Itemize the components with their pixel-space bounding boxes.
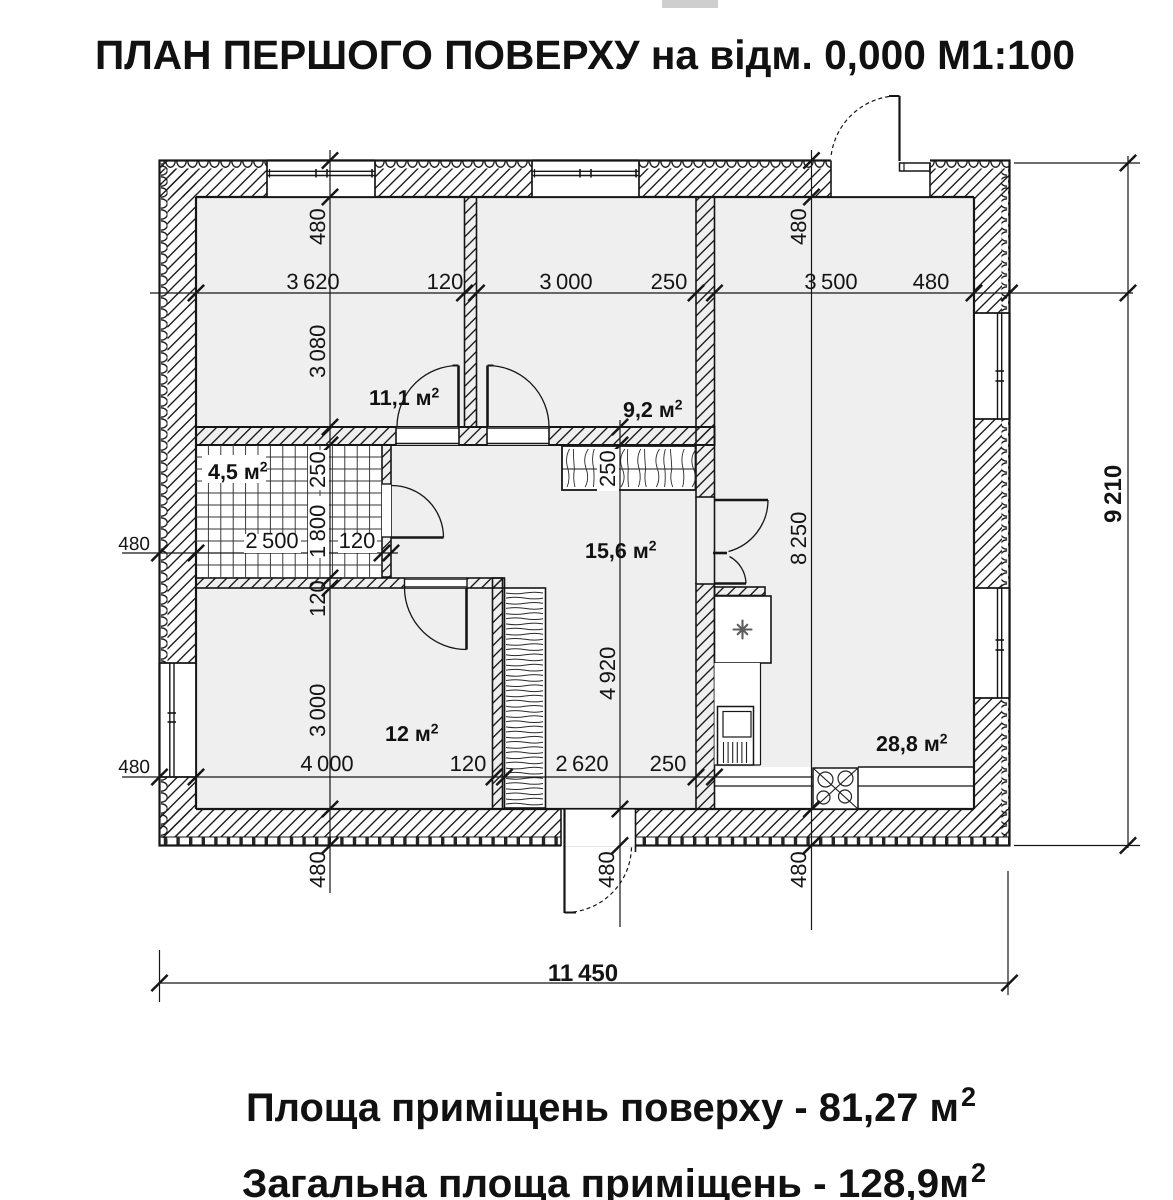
- svg-text:3 620: 3 620: [286, 269, 339, 294]
- svg-text:2: 2: [971, 1158, 986, 1188]
- svg-text:9,2 м2: 9,2 м2: [623, 397, 683, 423]
- svg-text:480: 480: [118, 757, 150, 778]
- svg-text:250: 250: [305, 451, 330, 488]
- svg-text:Площа приміщень поверху - 81,2: Площа приміщень поверху - 81,27 м: [246, 1086, 959, 1130]
- svg-text:12 м2: 12 м2: [385, 721, 439, 747]
- svg-text:120: 120: [427, 269, 464, 294]
- svg-text:15,6 м2: 15,6 м2: [585, 538, 657, 564]
- svg-text:2 500: 2 500: [245, 528, 298, 553]
- svg-text:120: 120: [450, 751, 487, 776]
- svg-text:250: 250: [595, 450, 620, 487]
- svg-text:2 620: 2 620: [555, 751, 608, 776]
- svg-text:4,5 м2: 4,5 м2: [208, 459, 268, 485]
- svg-text:3 080: 3 080: [305, 325, 330, 378]
- svg-text:480: 480: [305, 851, 330, 888]
- svg-text:Загальна площа приміщень - 128: Загальна площа приміщень - 128,9м: [242, 1162, 969, 1200]
- svg-text:1 800: 1 800: [305, 505, 330, 558]
- svg-text:480: 480: [786, 851, 811, 888]
- svg-text:250: 250: [650, 751, 687, 776]
- svg-text:3 000: 3 000: [305, 684, 330, 737]
- svg-text:3 000: 3 000: [539, 269, 592, 294]
- svg-text:480: 480: [913, 269, 950, 294]
- svg-text:4 000: 4 000: [300, 751, 353, 776]
- svg-text:11,1 м2: 11,1 м2: [369, 385, 440, 411]
- svg-text:480: 480: [594, 851, 619, 888]
- svg-text:120: 120: [339, 528, 376, 553]
- svg-text:480: 480: [305, 208, 330, 245]
- svg-text:2: 2: [961, 1082, 976, 1112]
- svg-text:9 210: 9 210: [1100, 465, 1127, 523]
- svg-text:480: 480: [118, 534, 150, 555]
- svg-text:3 500: 3 500: [804, 269, 857, 294]
- svg-text:8 250: 8 250: [786, 512, 811, 565]
- svg-text:11 450: 11 450: [548, 960, 618, 987]
- svg-text:250: 250: [651, 269, 688, 294]
- svg-text:28,8 м2: 28,8 м2: [876, 731, 948, 757]
- svg-text:480: 480: [786, 208, 811, 245]
- svg-text:ПЛАН ПЕРШОГО ПОВЕРХУ на відм.: ПЛАН ПЕРШОГО ПОВЕРХУ на відм. 0,000 М1:1…: [95, 32, 1075, 78]
- svg-text:120: 120: [305, 580, 330, 617]
- svg-text:4 920: 4 920: [595, 647, 620, 700]
